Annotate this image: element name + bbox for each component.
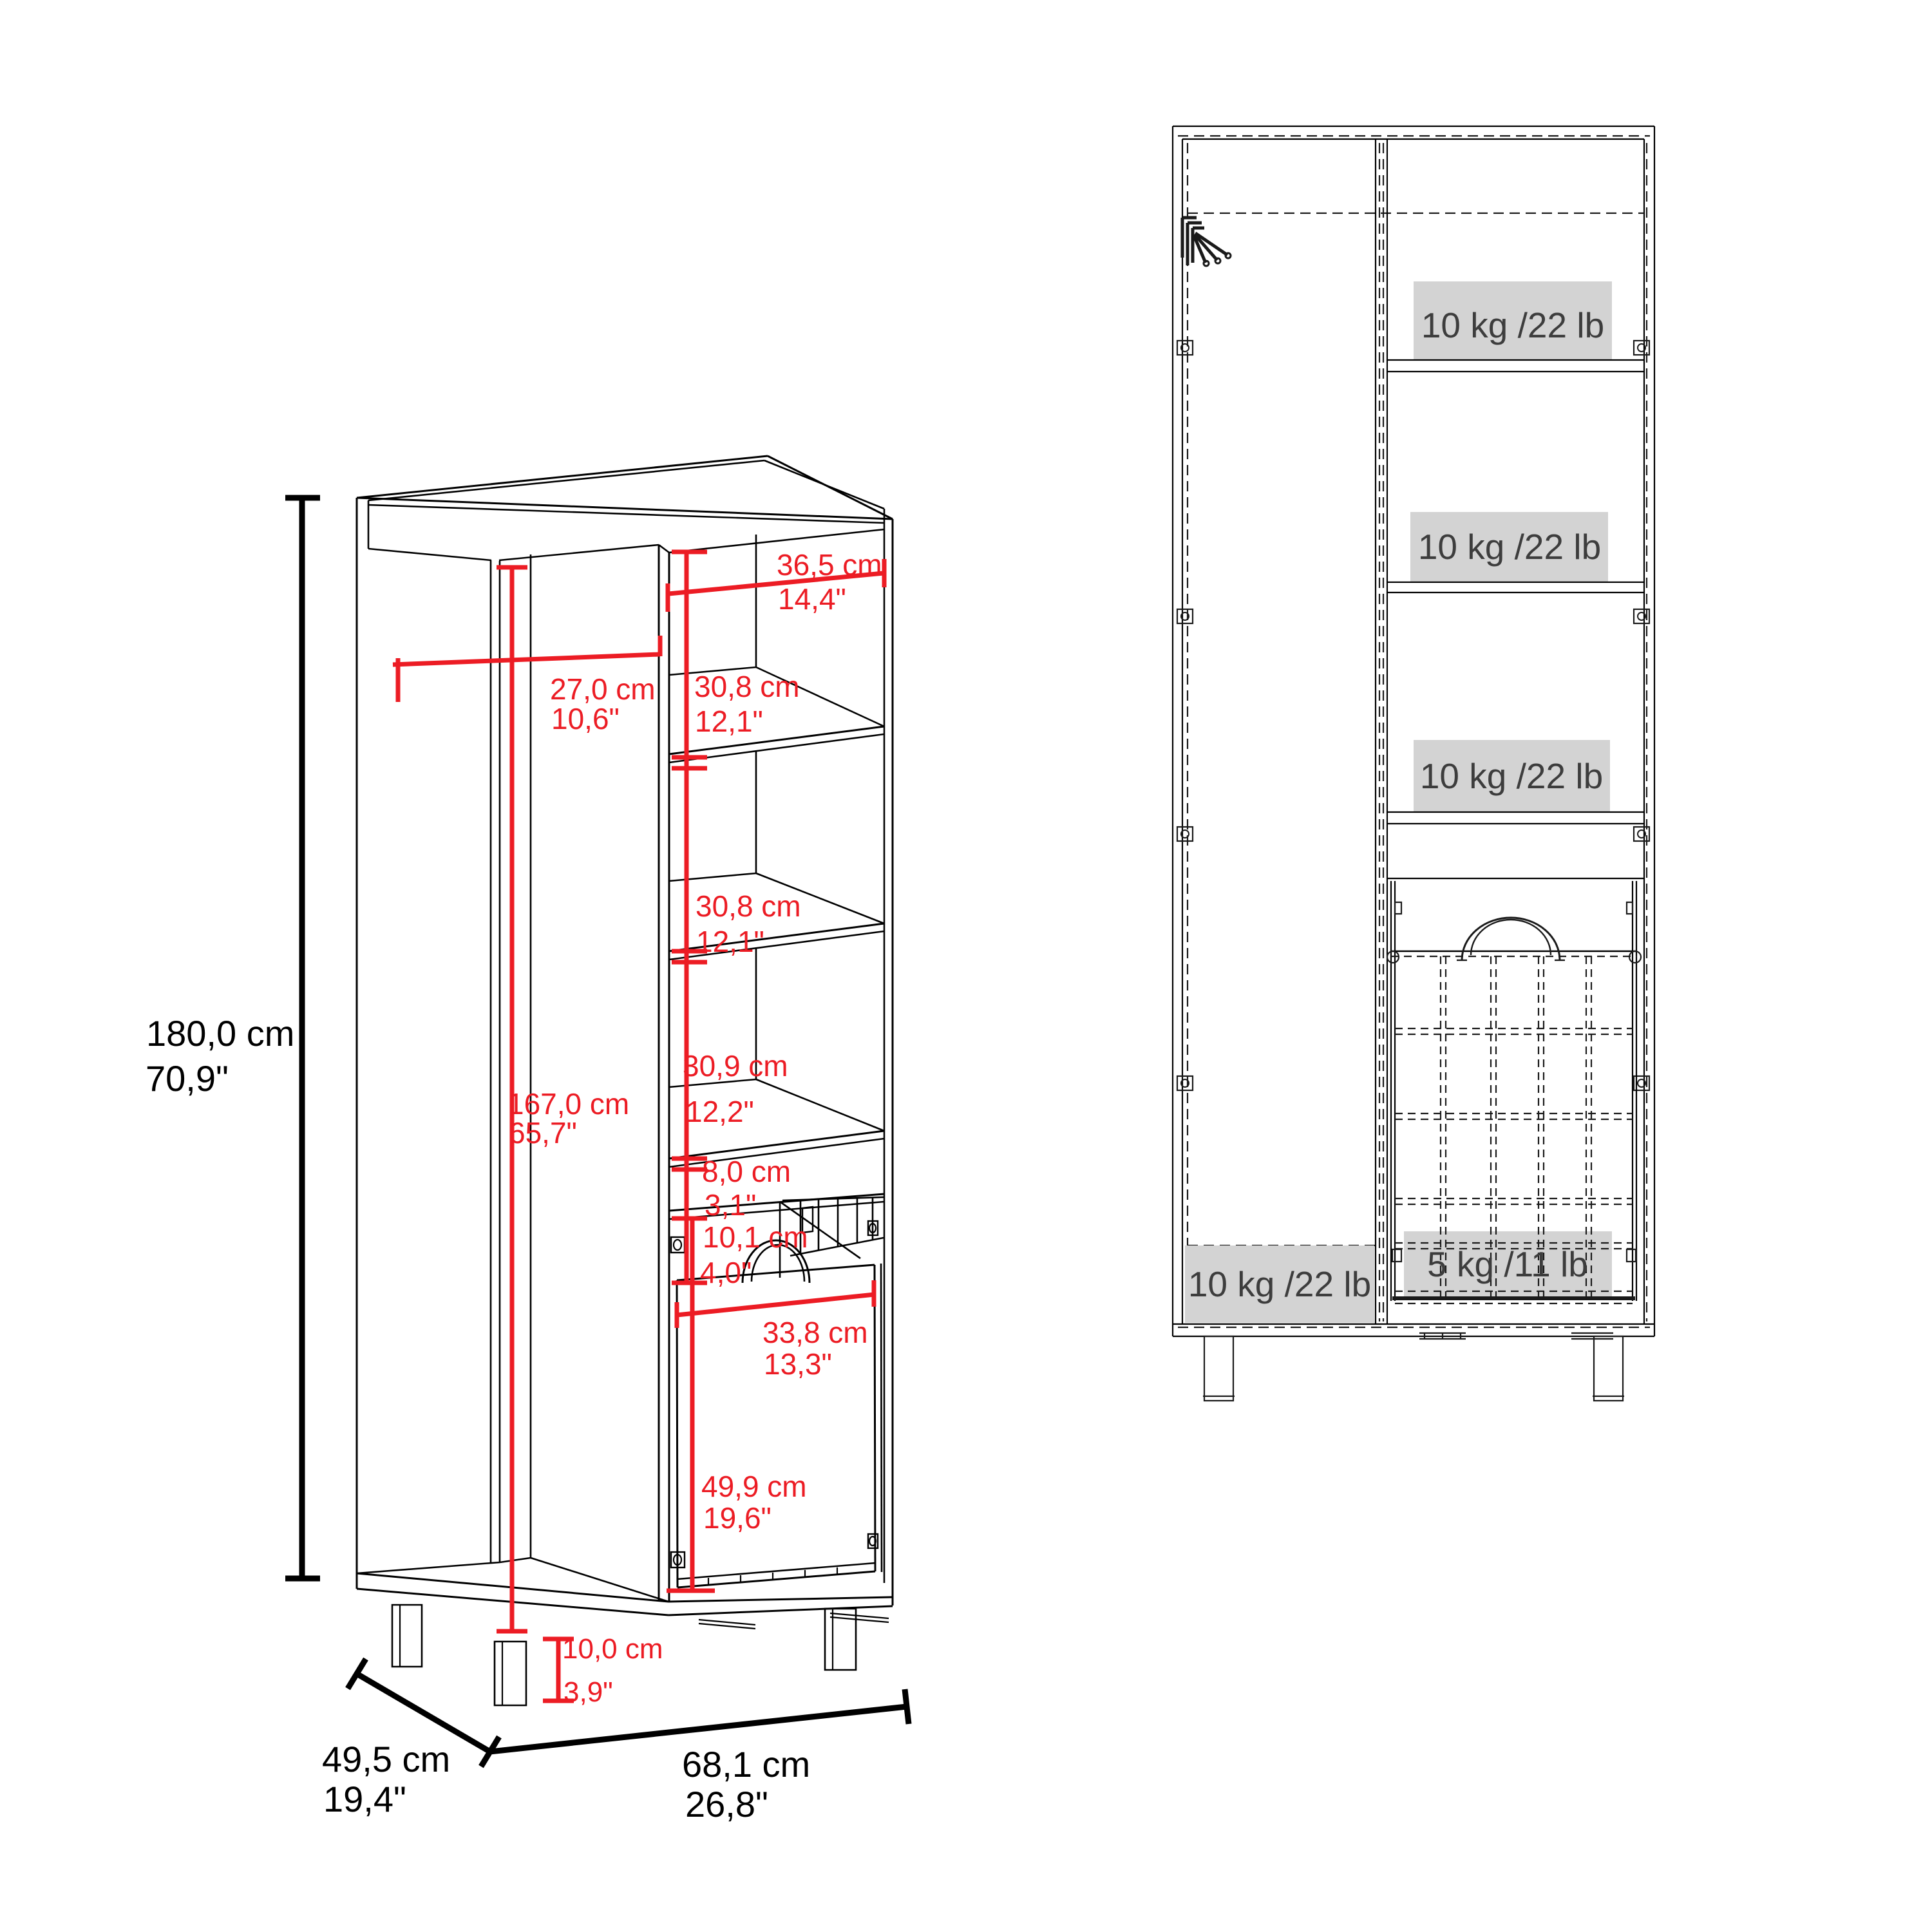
svg-text:3,1": 3,1": [705, 1188, 756, 1222]
svg-text:10,0 cm: 10,0 cm: [562, 1633, 663, 1665]
svg-text:19,6": 19,6": [703, 1501, 772, 1535]
svg-text:10 kg /22 lb: 10 kg /22 lb: [1188, 1264, 1371, 1304]
svg-text:4,0": 4,0": [700, 1256, 752, 1289]
svg-text:5 kg /11 lb: 5 kg /11 lb: [1427, 1244, 1588, 1284]
svg-text:19,4": 19,4": [323, 1779, 406, 1819]
svg-text:30,8 cm: 30,8 cm: [696, 889, 801, 923]
svg-text:13,3": 13,3": [764, 1347, 832, 1381]
svg-text:65,7": 65,7": [509, 1116, 577, 1150]
svg-text:10,1 cm: 10,1 cm: [703, 1220, 808, 1254]
svg-text:27,0 cm: 27,0 cm: [550, 672, 656, 706]
svg-text:70,9": 70,9": [146, 1058, 229, 1099]
svg-text:10 kg /22 lb: 10 kg /22 lb: [1421, 305, 1604, 345]
svg-text:10,6": 10,6": [551, 702, 620, 735]
svg-text:30,8 cm: 30,8 cm: [694, 670, 800, 703]
svg-text:12,1": 12,1": [695, 705, 763, 738]
svg-text:10 kg /22 lb: 10 kg /22 lb: [1420, 756, 1603, 796]
svg-text:14,4": 14,4": [778, 582, 846, 616]
svg-text:33,8 cm: 33,8 cm: [762, 1316, 868, 1349]
svg-text:49,9 cm: 49,9 cm: [701, 1470, 807, 1503]
svg-text:8,0 cm: 8,0 cm: [702, 1155, 791, 1188]
svg-text:36,5 cm: 36,5 cm: [777, 548, 882, 582]
svg-text:26,8": 26,8": [685, 1784, 768, 1824]
svg-text:3,9": 3,9": [563, 1676, 613, 1708]
svg-text:49,5 cm: 49,5 cm: [322, 1739, 450, 1779]
svg-text:12,1": 12,1": [696, 925, 764, 958]
svg-text:12,2": 12,2": [686, 1095, 754, 1128]
svg-text:180,0 cm: 180,0 cm: [146, 1013, 294, 1054]
svg-text:30,9 cm: 30,9 cm: [683, 1049, 788, 1083]
svg-text:10 kg /22 lb: 10 kg /22 lb: [1418, 527, 1601, 567]
svg-text:68,1 cm: 68,1 cm: [682, 1744, 810, 1785]
